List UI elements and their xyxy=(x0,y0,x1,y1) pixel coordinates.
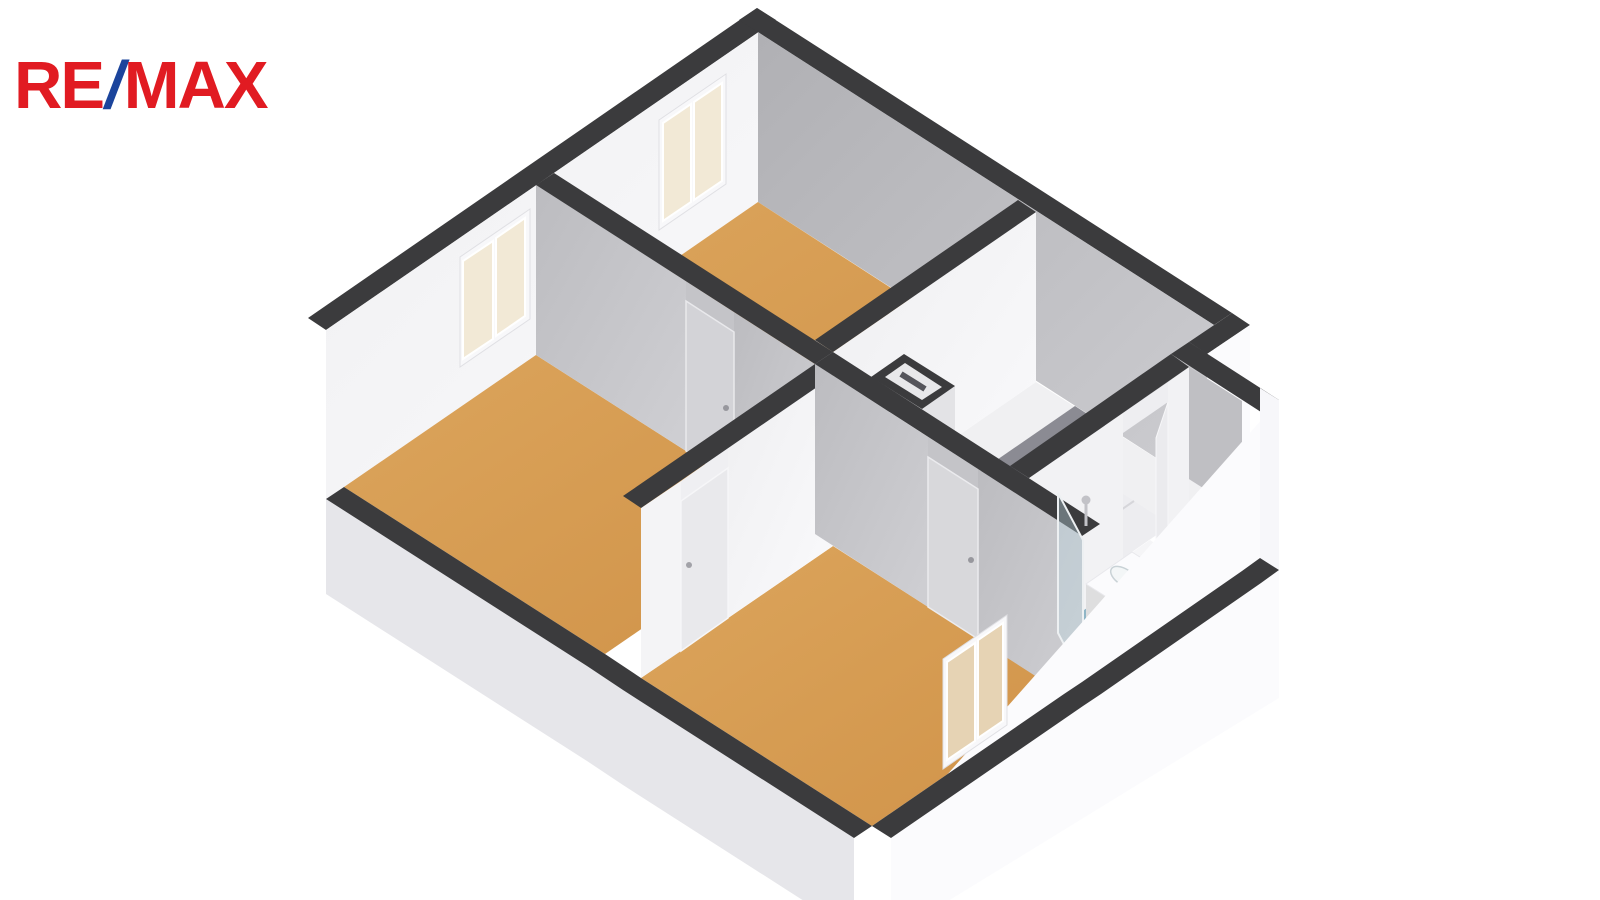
window-b-pane-2 xyxy=(463,241,493,359)
shower-head xyxy=(1082,496,1091,505)
door-2-handle xyxy=(686,562,692,568)
floorplan-3d-render xyxy=(0,0,1600,900)
remax-logo-max: MAX xyxy=(124,48,267,123)
door-1-handle xyxy=(723,405,729,411)
door-3-handle xyxy=(968,557,974,563)
remax-logo: RE/MAX xyxy=(14,52,267,119)
remax-logo-re: RE xyxy=(14,48,103,123)
window-c-pane-2 xyxy=(947,643,975,760)
wall-se-corner-face xyxy=(1260,388,1279,570)
wall-wb-east-face-south xyxy=(641,481,681,678)
window-a-pane-2 xyxy=(663,104,691,221)
window-a-pane-1 xyxy=(694,83,722,200)
window-c-pane-1 xyxy=(978,623,1003,738)
door-3-slab xyxy=(928,457,978,639)
door-2-slab xyxy=(681,468,728,651)
window-b-pane-1 xyxy=(496,218,525,336)
floorplan-canvas: RE/MAX xyxy=(0,0,1600,900)
remax-logo-slash: / xyxy=(103,48,124,123)
